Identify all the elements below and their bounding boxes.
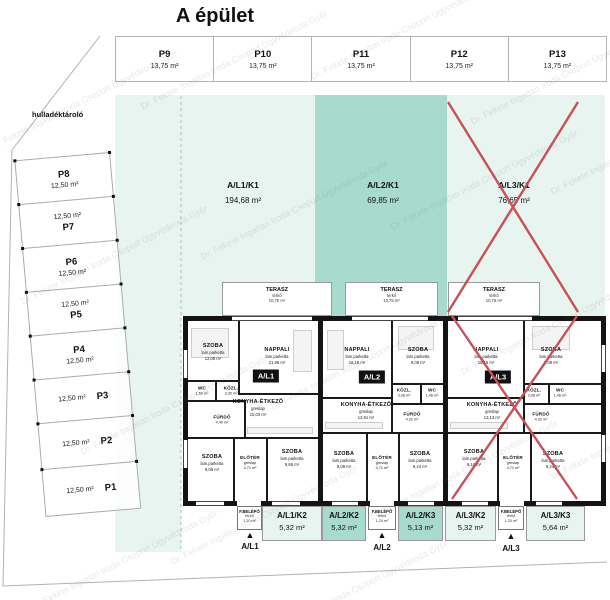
garden-label-a-l2-k1: A/L2/K1 69,85 m²: [367, 180, 399, 205]
furniture-kitchen-counter: [450, 422, 508, 429]
parking-space-p13: P13 13,75 m²: [508, 36, 607, 82]
interior-wall: [448, 397, 524, 399]
interior-wall: [188, 380, 240, 382]
room-name: SZOBA: [521, 451, 585, 458]
garden-a-l3-k1-code: A/L3/K1: [498, 180, 530, 190]
parking-space-p11: P11 13,75 m²: [311, 36, 410, 82]
parking-p5-area: 12,50 m²: [61, 299, 89, 308]
parking-space-p1: P1 12,50 m²: [42, 462, 140, 516]
parking-p2-label: P2: [100, 435, 113, 447]
furniture-kitchen-counter: [247, 427, 313, 434]
covered-entry-a-l3: F.BELÉPŐ térkő 1,20 m²: [498, 506, 524, 530]
room-name: KONYHA-ÉTKEZŐ: [334, 402, 398, 409]
page-title: A épület: [115, 5, 315, 28]
room-area: 16,16 m²: [454, 360, 518, 365]
front-garden-area: 5,64 m²: [527, 523, 584, 532]
garden-label-a-l3-k1: A/L3/K1 76,65 m²: [498, 180, 530, 205]
parking-p10-area: 13,75 m²: [249, 63, 277, 70]
parking-p1-area: 12,50 m²: [66, 485, 94, 494]
covered-entry-a-l1: F.BELÉPŐ térkő 1,20 m²: [237, 506, 262, 530]
parking-p3-area: 12,50 m²: [58, 394, 86, 403]
entry-label-a-l1: A/L1: [241, 542, 258, 551]
front-garden-area: 5,13 m²: [399, 523, 442, 532]
interior-wall: [448, 432, 601, 434]
terrace-a-l2-area: 10,75 m²: [346, 298, 437, 303]
furniture-kitchen-counter: [325, 422, 383, 429]
parking-p7-label: P7: [62, 221, 75, 233]
room-a-l3-szoba-3: SZOBA lam.parketta 9,24 m²: [521, 451, 585, 469]
front-garden-label: A/L3/K2: [446, 511, 495, 520]
room-a-l1-nappali: NAPPALI lam.parketta 21,96 m²: [245, 347, 309, 365]
interior-wall: [188, 437, 318, 439]
room-name: KONYHA-ÉTKEZŐ: [226, 399, 290, 406]
interior-wall: [323, 432, 443, 434]
unit-tag-a-l3: A/L3: [485, 371, 511, 384]
interior-wall: [523, 383, 601, 385]
front-garden-area: 5,32 m²: [263, 523, 321, 532]
room-a-l1-szoba-1: SZOBA lam.parketta 12,05 m²: [181, 343, 245, 361]
waste-storage-label: hulladéktároló: [32, 110, 83, 119]
interior-wall: [391, 383, 443, 385]
front-garden-label: A/L1/K2: [263, 511, 321, 520]
parking-p5-label: P5: [70, 309, 83, 321]
interior-wall: [266, 437, 268, 501]
front-garden-a-l3-k3: A/L3/K3 5,64 m²: [526, 506, 585, 541]
room-name: NAPPALI: [245, 347, 309, 354]
front-garden-area: 5,32 m²: [446, 523, 495, 532]
parking-space-p12: P12 13,75 m²: [410, 36, 509, 82]
covered-entry-area: 1,20 m²: [499, 519, 523, 524]
entry-label-a-l3: A/L3: [502, 544, 519, 553]
room-area: 12,05 m²: [181, 356, 245, 361]
room-a-l1-furdo: FÜRDŐ 4,40 m²: [206, 415, 238, 426]
parking-p3-label: P3: [96, 390, 109, 402]
room-a-l3-konyha: KONYHA-ÉTKEZŐ greslap 13,13 m²: [460, 402, 524, 420]
room-area: 1,50 m²: [186, 392, 218, 397]
entry-label-a-l2: A/L2: [373, 543, 390, 552]
garden-a-l1-k1-area: 194,68 m²: [225, 196, 261, 205]
garden-a-l2-k1-area: 69,85 m²: [367, 196, 399, 205]
parking-p6-area: 12,50 m²: [58, 268, 86, 277]
covered-entry-a-l2: F.BELÉPŐ térkő 1,20 m²: [368, 506, 396, 530]
parking-row-top: P9 13,75 m² P10 13,75 m² P11 13,75 m² P1…: [115, 36, 607, 82]
room-area: 9,08 m²: [519, 360, 583, 365]
covered-entry-area: 1,20 m²: [369, 519, 395, 524]
room-name: SZOBA: [386, 347, 450, 354]
room-area: 1,46 m²: [416, 394, 448, 399]
room-area: 12,91 m²: [334, 415, 398, 420]
front-garden-label: A/L2/K2: [323, 511, 365, 520]
garden-a-l3-k1-area: 76,65 m²: [498, 196, 530, 205]
terrace-a-l1-area: 10,75 m²: [223, 298, 331, 303]
room-name: NAPPALI: [325, 347, 389, 354]
room-a-l2-wc: WC 1,46 m²: [416, 388, 448, 399]
parking-p11-area: 13,75 m²: [347, 63, 375, 70]
front-garden-label: A/L3/K3: [527, 511, 584, 520]
entry-arrow-icon: ▲: [378, 531, 387, 540]
entry-arrow-icon: ▲: [246, 531, 255, 540]
parking-space-p2: P2 12,50 m²: [38, 416, 136, 470]
front-garden-a-l3-k2: A/L3/K2 5,32 m²: [445, 506, 496, 541]
interior-wall: [391, 403, 443, 405]
room-name: SZOBA: [181, 343, 245, 350]
parking-p9-label: P9: [159, 49, 171, 60]
room-area: 21,96 m²: [245, 360, 309, 365]
window: [601, 345, 606, 372]
parking-p11-label: P11: [353, 49, 369, 60]
room-name: KONYHA-ÉTKEZŐ: [460, 402, 524, 409]
parking-p4-area: 12,50 m²: [66, 356, 94, 365]
covered-entry-area: 1,20 m²: [238, 519, 261, 524]
front-garden-label: A/L2/K3: [399, 511, 442, 520]
terrace-door-window: [232, 316, 312, 321]
garden-a-l2-k1-code: A/L2/K1: [367, 180, 399, 190]
room-area: 3,30 m²: [215, 392, 247, 397]
parking-p2-area: 12,50 m²: [62, 439, 90, 448]
terrace-a-l1: TERASZ térkő 10,75 m²: [222, 282, 332, 316]
parking-p8-label: P8: [57, 168, 70, 180]
parking-p9-area: 13,75 m²: [151, 63, 179, 70]
parking-p1-label: P1: [104, 481, 117, 493]
parking-p4-label: P4: [73, 343, 86, 355]
room-area: 4,40 m²: [206, 421, 238, 426]
parking-space-p10: P10 13,75 m²: [213, 36, 312, 82]
parking-p10-label: P10: [254, 49, 271, 60]
terrace-a-l2: TERASZ térkő 10,75 m²: [345, 282, 438, 316]
site-plan-canvas: A/L1/K1 194,68 m² A/L2/K1 69,85 m² A/L3/…: [0, 0, 610, 600]
room-a-l2-konyha: KONYHA-ÉTKEZŐ greslap 12,91 m²: [334, 402, 398, 420]
terrace-a-l3-area: 10,75 m²: [449, 298, 539, 303]
parking-p8-area: 12,50 m²: [51, 180, 79, 189]
room-a-l3-wc: WC 1,46 m²: [544, 388, 576, 399]
room-a-l1-wc: WC 1,50 m²: [186, 386, 218, 397]
watermark-text: Dr. Fekete Ingatlan Iroda Csoport Ügyvéd…: [259, 538, 449, 600]
room-area: 4,32 m²: [396, 418, 428, 423]
room-a-l2-szoba-1: SZOBA lam.parketta 9,08 m²: [386, 347, 450, 365]
room-name: NAPPALI: [454, 347, 518, 354]
room-a-l3-furdo: FÜRDŐ 4,32 m²: [525, 412, 557, 423]
terrace-a-l3: TERASZ térkő 10,75 m²: [448, 282, 540, 316]
room-area: 1,46 m²: [544, 394, 576, 399]
room-area: 16,16 m²: [325, 360, 389, 365]
party-wall-l1-l2: [318, 316, 323, 506]
front-garden-area: 5,32 m²: [323, 523, 365, 532]
room-a-l3-szoba-1: SZOBA lam.parketta 9,08 m²: [519, 347, 583, 365]
parking-p7-area: 12,50 m²: [53, 211, 81, 220]
unit-tag-a-l2: A/L2: [359, 371, 385, 384]
terrace-door-window: [352, 316, 428, 321]
garden-label-a-l1-k1: A/L1/K1 194,68 m²: [225, 180, 261, 205]
interior-wall: [323, 397, 392, 399]
front-garden-a-l2-k3: A/L2/K3 5,13 m²: [398, 506, 443, 541]
parking-p6-label: P6: [65, 256, 78, 268]
parking-p12-area: 13,75 m²: [445, 63, 473, 70]
room-a-l2-nappali: NAPPALI lam.parketta 16,16 m²: [325, 347, 389, 365]
parking-p13-area: 13,75 m²: [544, 63, 572, 70]
room-area: 13,13 m²: [460, 415, 524, 420]
room-a-l2-furdo: FÜRDŐ 4,32 m²: [396, 412, 428, 423]
front-garden-a-l1-k2: A/L1/K2 5,32 m²: [262, 506, 322, 541]
unit-tag-a-l1: A/L1: [253, 370, 279, 383]
room-a-l3-nappali: NAPPALI lam.parketta 16,16 m²: [454, 347, 518, 365]
parking-space-p9: P9 13,75 m²: [115, 36, 214, 82]
room-area: 4,32 m²: [525, 418, 557, 423]
room-name: SZOBA: [519, 347, 583, 354]
window: [196, 501, 224, 506]
window: [601, 435, 606, 462]
entry-arrow-icon: ▲: [507, 532, 516, 541]
terrace-door-window: [458, 316, 532, 321]
room-area: 9,24 m²: [521, 464, 585, 469]
party-wall-l2-l3: [443, 316, 448, 506]
interior-wall: [240, 393, 318, 395]
interior-wall: [523, 403, 601, 405]
parking-p12-label: P12: [451, 49, 468, 60]
garden-a-l1-k1-code: A/L1/K1: [225, 180, 261, 190]
room-a-l1-kozl: KÖZL. 3,30 m²: [215, 386, 247, 397]
parking-p13-label: P13: [549, 49, 566, 60]
front-garden-a-l2-k2: A/L2/K2 5,32 m²: [322, 506, 366, 541]
room-area: 9,08 m²: [386, 360, 450, 365]
